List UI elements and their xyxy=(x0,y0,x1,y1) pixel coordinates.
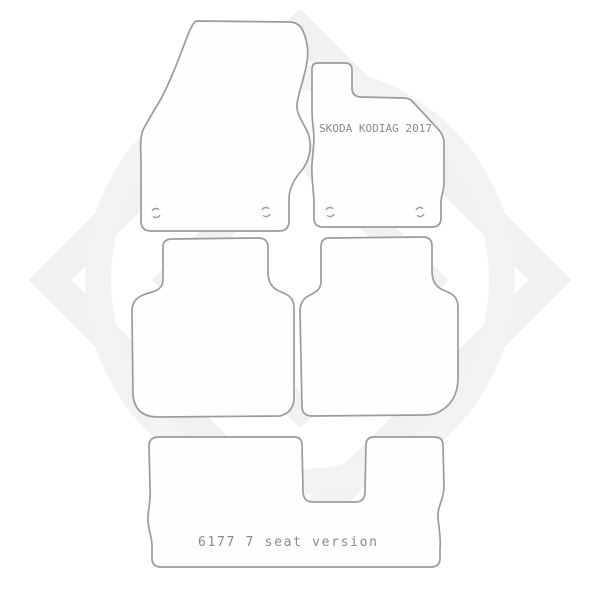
front-driver-mat-outline xyxy=(141,21,311,231)
rear-right-mat-outline xyxy=(300,237,458,416)
boot-mat-label: 6177 7 seat version xyxy=(198,535,378,550)
diagram-canvas: SKODA KODIAG 2017 6177 7 seat version xyxy=(0,0,600,600)
car-mat-set-diagram: SKODA KODIAG 2017 6177 7 seat version xyxy=(0,0,600,600)
passenger-mat-label: SKODA KODIAG 2017 xyxy=(319,122,433,135)
rear-left-mat-outline xyxy=(132,238,294,417)
mat-outlines xyxy=(132,21,458,567)
